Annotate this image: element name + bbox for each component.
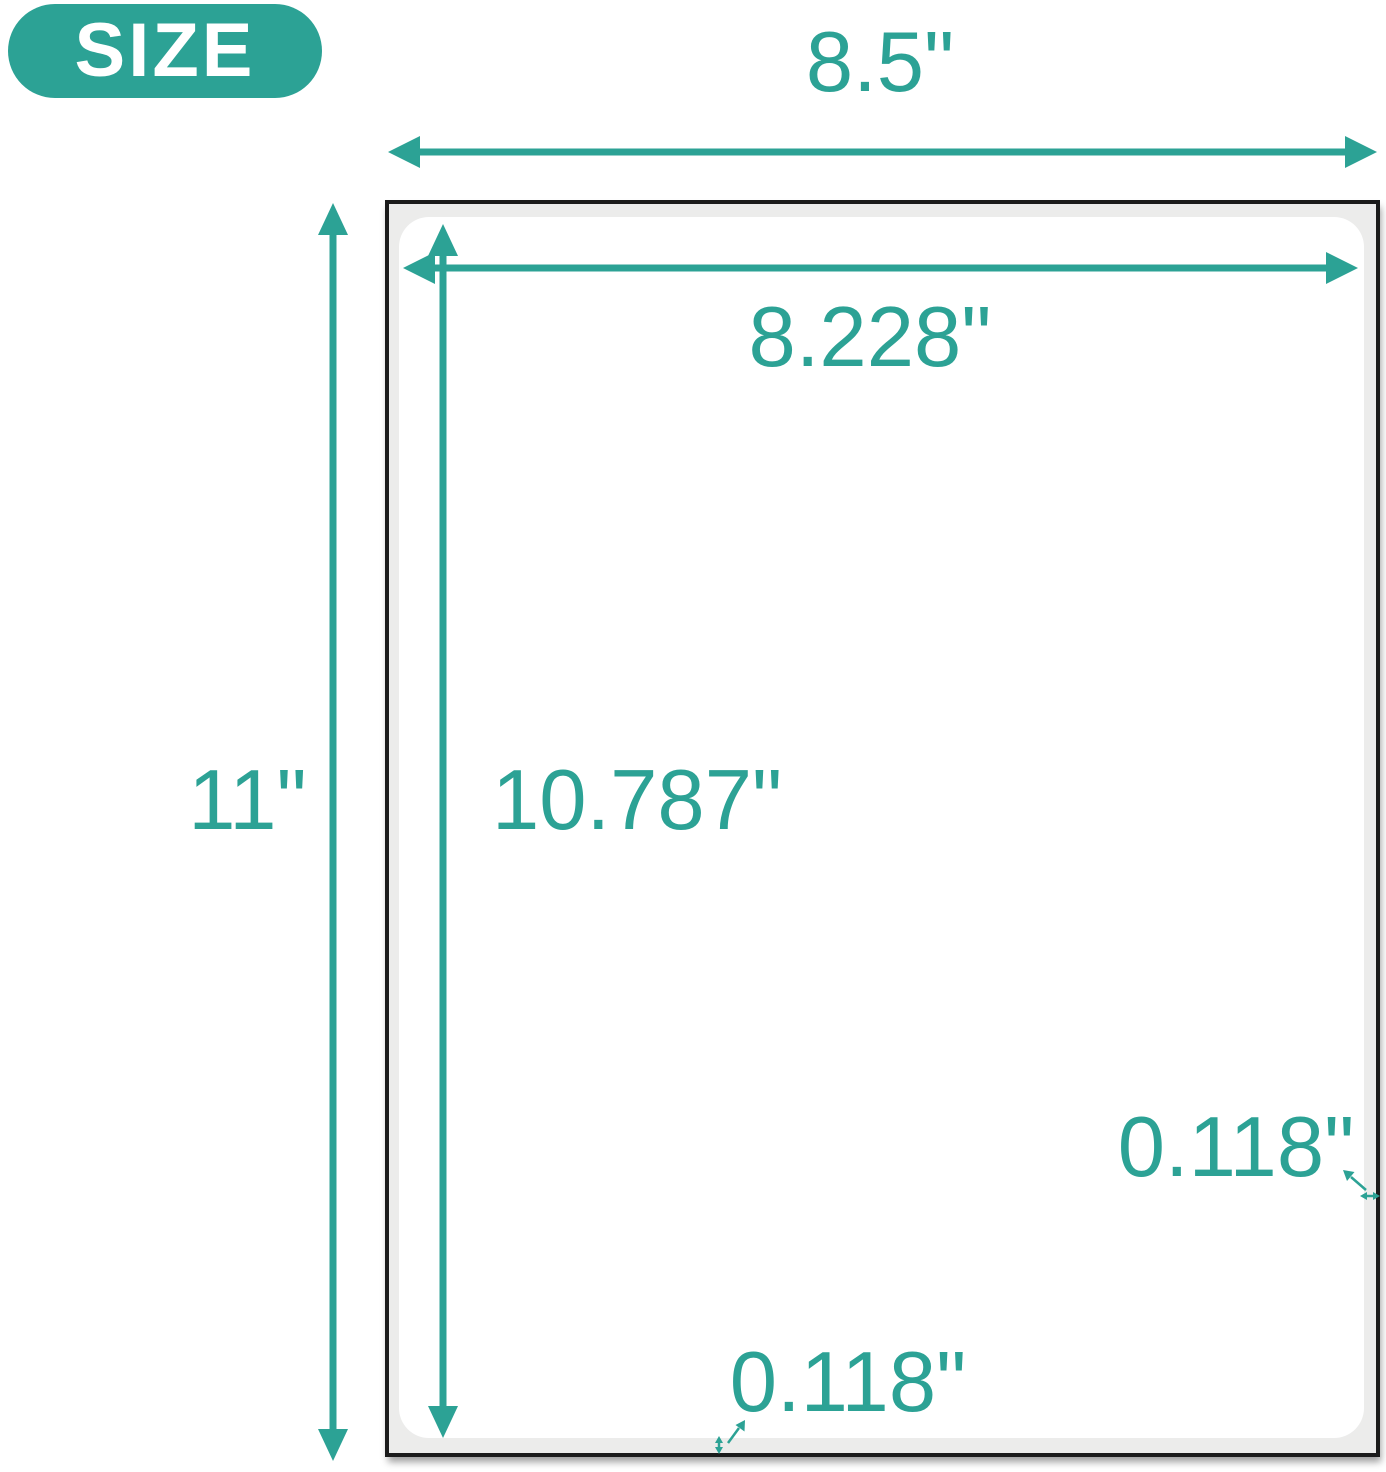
label-height-value: 10.787" bbox=[492, 758, 782, 843]
sheet-height-value: 11" bbox=[150, 758, 345, 843]
size-badge: SIZE bbox=[8, 4, 322, 98]
label-size-diagram: SIZE 8.5" 8.228" 11" 10.787" 0.118" 0.11… bbox=[0, 0, 1386, 1472]
margin-bottom-value: 0.118" bbox=[718, 1340, 978, 1425]
sheet-width-arrow bbox=[388, 136, 1377, 168]
margin-right-value: 0.118" bbox=[1106, 1105, 1366, 1190]
label-width-value: 8.228" bbox=[740, 295, 1000, 380]
size-badge-label: SIZE bbox=[75, 13, 256, 89]
sheet-width-value: 8.5" bbox=[750, 20, 1010, 105]
